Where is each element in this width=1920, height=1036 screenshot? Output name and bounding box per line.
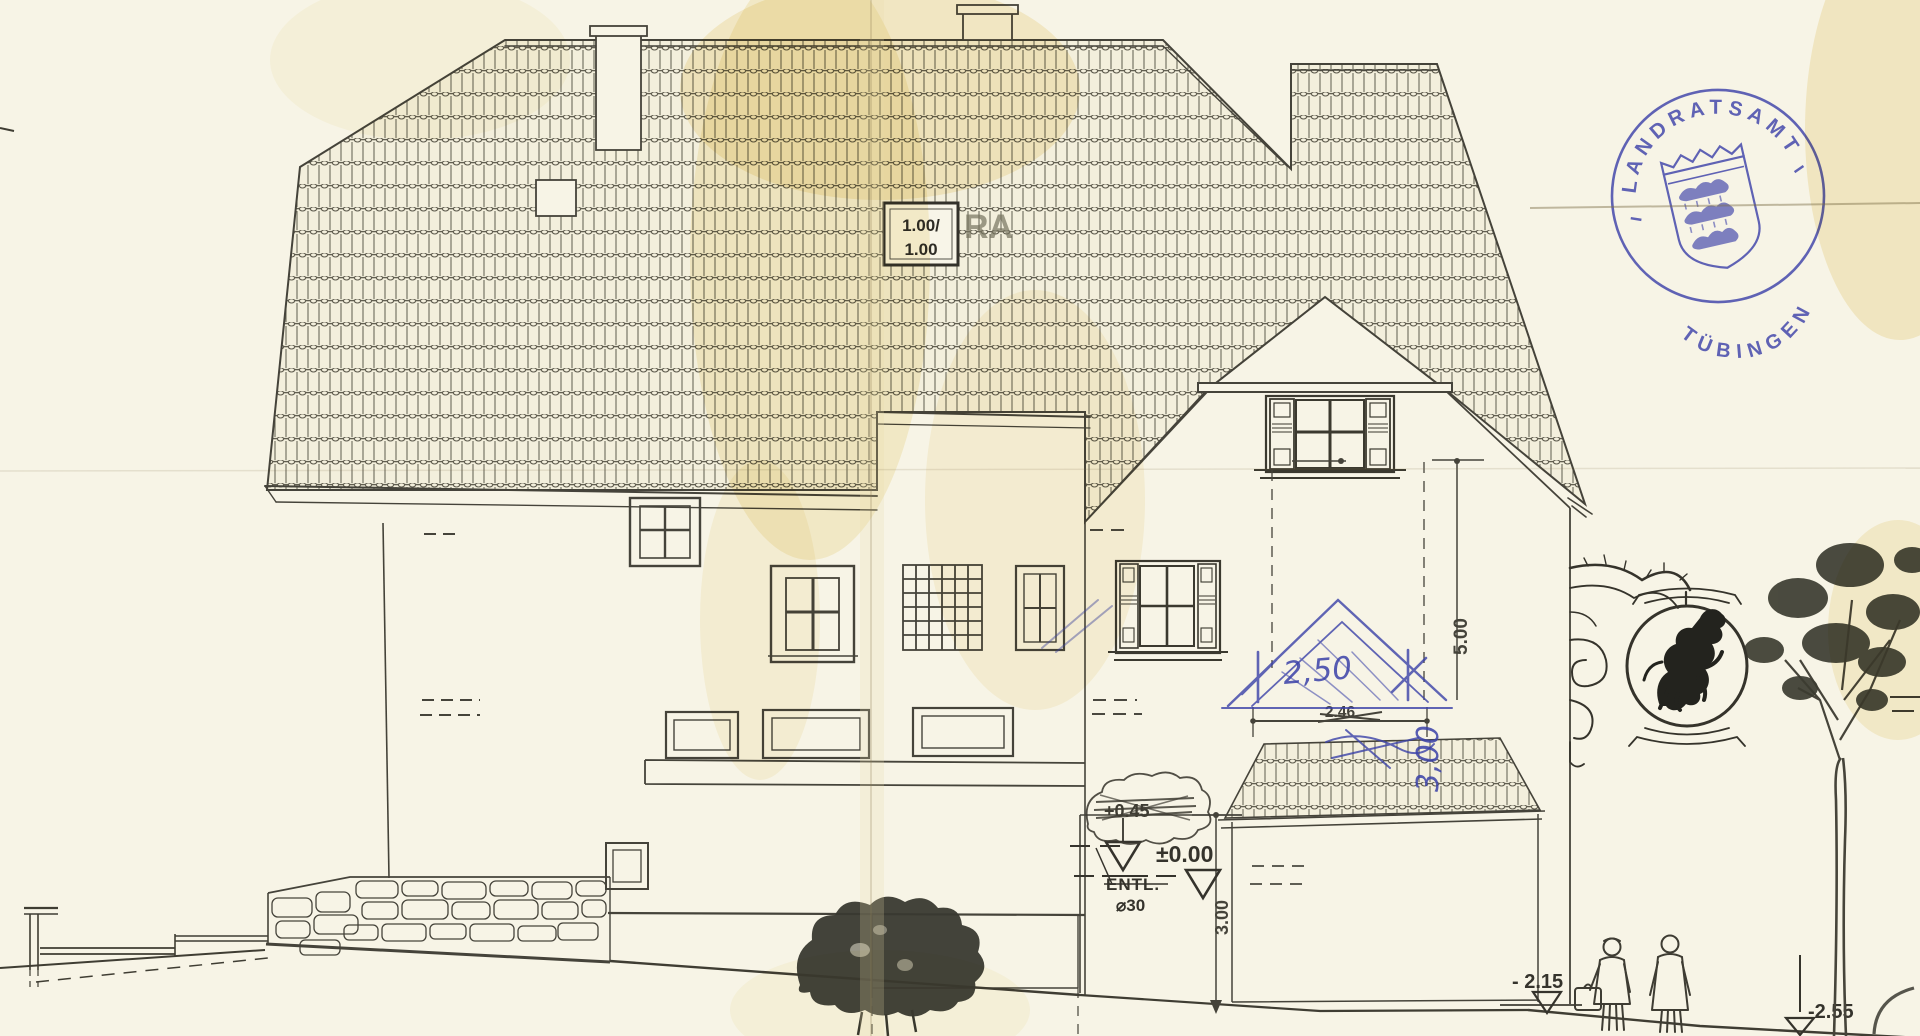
window-upper-left <box>630 498 700 566</box>
drain-size: ⌀30 <box>1116 896 1145 915</box>
porch <box>1218 738 1545 1002</box>
level-minus-255-label: -2.55 <box>1808 1001 1854 1023</box>
scanned-elevation-drawing: 1.00/ 1.00 RA <box>0 0 1920 1036</box>
roof-skylight <box>536 180 576 216</box>
dim-250-blue: 2,50 <box>1282 650 1354 692</box>
dim-5m-label: 5.00 <box>1451 618 1472 655</box>
dim-3m-blue: 3,00 <box>1411 725 1446 792</box>
level-minus-215-label: - 2.15 <box>1512 971 1563 993</box>
dim-3m-label: 3.00 <box>1212 900 1232 935</box>
ra-stencil-text: RA <box>964 208 1013 246</box>
chimney-left <box>590 26 647 150</box>
level-zero-label: ±0.00 <box>1156 841 1213 867</box>
porch-wall <box>1232 820 1538 1002</box>
